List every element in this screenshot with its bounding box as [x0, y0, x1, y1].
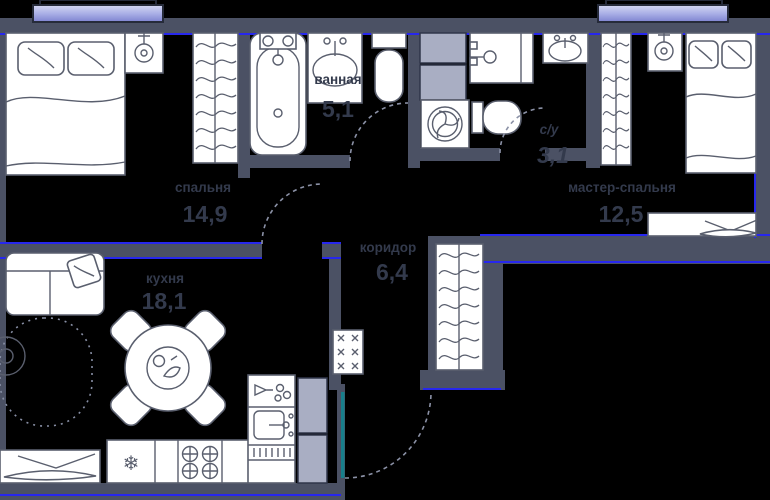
rug — [0, 318, 92, 426]
room-label-wc: с/у — [540, 122, 560, 137]
wall-kitchen-bottom — [0, 483, 341, 500]
toilet-bowl — [375, 50, 403, 102]
service-riser — [333, 330, 363, 374]
burner-icon — [183, 464, 198, 479]
drainer-hatch — [254, 448, 290, 457]
nightstand-top — [648, 33, 682, 71]
cabinet — [298, 435, 327, 483]
hinge-icon — [470, 58, 477, 65]
bathroom-furniture — [250, 33, 406, 155]
room-area-kitchen: 18,1 — [142, 288, 187, 314]
wall-master-bottom — [480, 236, 770, 264]
wall-bathroom-wc-divider — [408, 33, 420, 155]
toilet-bowl — [483, 101, 521, 134]
kitchen-counter-row: ❄ — [107, 440, 250, 483]
bathtub — [250, 33, 306, 155]
corridor-furniture — [333, 244, 483, 374]
room-label-master: мастер-спальня — [568, 180, 676, 195]
pillow — [18, 42, 64, 75]
wall-wc-bottom-left — [420, 148, 500, 161]
cabinet — [420, 65, 466, 100]
kitchen-door-arc — [262, 184, 322, 244]
shower-tray — [470, 33, 533, 83]
pillow — [68, 42, 114, 75]
wall-right — [756, 18, 770, 264]
room-area-master: 12,5 — [599, 201, 644, 227]
riser-box — [333, 330, 363, 374]
sofa — [6, 253, 104, 315]
kitchen-counter-column — [248, 375, 295, 483]
room-area-wc: 3,1 — [537, 142, 569, 168]
wardrobe-bedroom — [193, 33, 238, 163]
room-label-kitchen: кухня — [146, 271, 184, 286]
wall-bathroom-bottom-stub — [408, 155, 420, 168]
bedroom-furniture — [6, 33, 238, 175]
bathtub-faucet-panel — [260, 33, 296, 49]
room-area-bedroom: 14,9 — [183, 201, 228, 227]
wc-furniture — [420, 33, 588, 148]
floor-plan-canvas: ❄ — [0, 0, 770, 500]
wall-bathroom-bottom — [238, 155, 350, 168]
room-area-corridor: 6,4 — [376, 259, 408, 285]
washing-machine — [421, 100, 469, 148]
double-bed — [6, 33, 125, 175]
bathroom-door-arc — [350, 103, 408, 161]
room-area-bathroom: 5,1 — [322, 96, 354, 122]
room-label-corridor: коридор — [360, 240, 416, 255]
toilet-tank — [372, 33, 406, 48]
pillow — [689, 41, 718, 68]
pillow — [722, 41, 751, 68]
shower — [470, 33, 533, 83]
room-label-bathroom: ванная — [314, 72, 361, 87]
wardrobe-corridor — [436, 244, 483, 370]
window-master — [598, 5, 728, 22]
wardrobe-master — [601, 33, 631, 165]
burner-icon — [203, 464, 218, 479]
master-bed — [686, 33, 756, 173]
wall-closet-top — [428, 236, 483, 244]
wall-closet-right — [483, 236, 503, 390]
wc-toilet — [472, 101, 521, 134]
bathroom-toilet — [372, 33, 406, 102]
wall-closet-left — [428, 236, 436, 386]
toilet-tank — [472, 102, 483, 133]
dining-table — [125, 325, 211, 411]
burner-icon — [203, 447, 218, 462]
hinge-icon — [470, 42, 477, 49]
fridge-snowflake-icon: ❄ — [123, 451, 140, 475]
accent-line-closet — [423, 388, 501, 390]
accent-line-divider-a — [0, 242, 262, 244]
floor-plan: ❄ — [0, 0, 770, 500]
accent-line-master-b — [480, 261, 770, 263]
cabinet — [420, 33, 466, 63]
burner-icon — [183, 447, 198, 462]
bathroom-sink — [308, 33, 362, 103]
dining-set — [107, 307, 229, 429]
entry-door-arc — [345, 392, 431, 478]
window-bedroom — [33, 5, 163, 22]
tv-stand-living — [0, 450, 100, 483]
wc-sink — [543, 33, 588, 63]
cabinet — [298, 378, 327, 433]
accent-line-divider-d — [322, 257, 341, 259]
nightstand — [125, 33, 163, 73]
accent-line-divider-c — [322, 242, 341, 244]
room-label-bedroom: спальня — [175, 180, 231, 195]
entry-door-leaf — [341, 392, 345, 478]
accent-line-kitchen-bottom — [0, 494, 341, 496]
nightstand-master — [648, 33, 682, 71]
master-dresser — [648, 213, 757, 237]
